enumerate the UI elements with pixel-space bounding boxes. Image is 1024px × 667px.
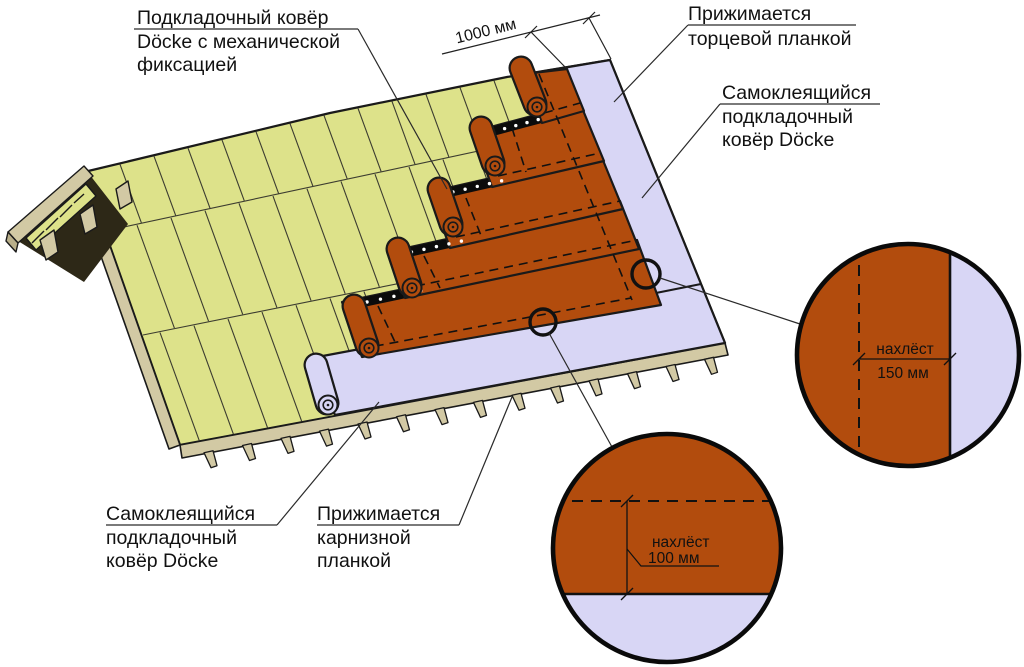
label-end-strip: Прижимается торцевой планкой [688, 3, 852, 50]
rafter-tail [281, 436, 294, 453]
rafter-tail [628, 372, 641, 389]
roofing-diagram: 1000 мм нахлёст 150 мм [0, 0, 1024, 667]
rafter-tail [551, 386, 564, 403]
fastener-dot [447, 242, 450, 245]
label-line: ковёр Döcke [722, 129, 834, 151]
label-selfadhesive-right: Самоклеящийся подкладочный ковёр Döcke [722, 82, 871, 151]
overlap-100-value: 100 мм [648, 550, 699, 567]
diagram-canvas: 1000 мм нахлёст 150 мм [0, 0, 1024, 667]
fastener-dot [463, 187, 466, 190]
rafter-tail [320, 429, 333, 446]
label-underlay-mechanical: Подкладочный ковёр Döcke с механической … [137, 7, 340, 76]
fastener-dot [379, 297, 382, 300]
fastener-dot [488, 182, 491, 185]
fastener-dot [476, 185, 479, 188]
rafter-tail [512, 393, 525, 410]
label-line: Прижимается [317, 503, 440, 525]
fastener-dot [525, 121, 528, 124]
fastener-dot [537, 118, 540, 121]
label-line: подкладочный [106, 527, 237, 549]
rafter-tail [666, 364, 679, 381]
rafter-tail [435, 408, 448, 425]
label-selfadhesive-left: Самоклеящийся подкладочный ковёр Döcke [106, 503, 255, 572]
label-line: торцевой планкой [688, 28, 852, 50]
label-line: ковёр Döcke [106, 550, 218, 572]
label-line: Самоклеящийся [722, 82, 871, 104]
overlap-100-label: нахлёст [652, 534, 709, 551]
rafter-tail [589, 379, 602, 396]
label-line: фиксацией [137, 54, 237, 76]
fastener-dot [460, 239, 463, 242]
fastener-dot [422, 248, 425, 251]
fastener-dot [503, 127, 506, 130]
overlap-150-value: 150 мм [877, 365, 928, 382]
label-line: карнизной [317, 527, 411, 549]
label-line: Подкладочный ковёр [137, 7, 329, 29]
extension-line [589, 18, 611, 59]
rafter-tail [243, 444, 256, 461]
rafter-tail [397, 415, 410, 432]
overlap-150-label: нахлёст [876, 341, 933, 358]
fastener-dot [435, 245, 438, 248]
label-line: планкой [317, 550, 391, 572]
detail-circle-end-overlap: нахлёст 100 мм [551, 432, 783, 664]
label-line: подкладочный [722, 106, 853, 128]
rafter-tail [204, 451, 217, 468]
label-line: Прижимается [688, 3, 811, 25]
rafter-tail [474, 400, 487, 417]
fastener-dot [392, 295, 395, 298]
detail-circle-side-overlap: нахлёст 150 мм [795, 242, 1024, 468]
fastener-dot [500, 179, 503, 182]
label-line: Самоклеящийся [106, 503, 255, 525]
fastener-dot [514, 124, 517, 127]
label-line: Döcke с механической [137, 31, 340, 53]
label-eaves-strip: Прижимается карнизной планкой [317, 503, 440, 572]
rafter-tail [705, 357, 718, 374]
extension-line [531, 32, 566, 68]
